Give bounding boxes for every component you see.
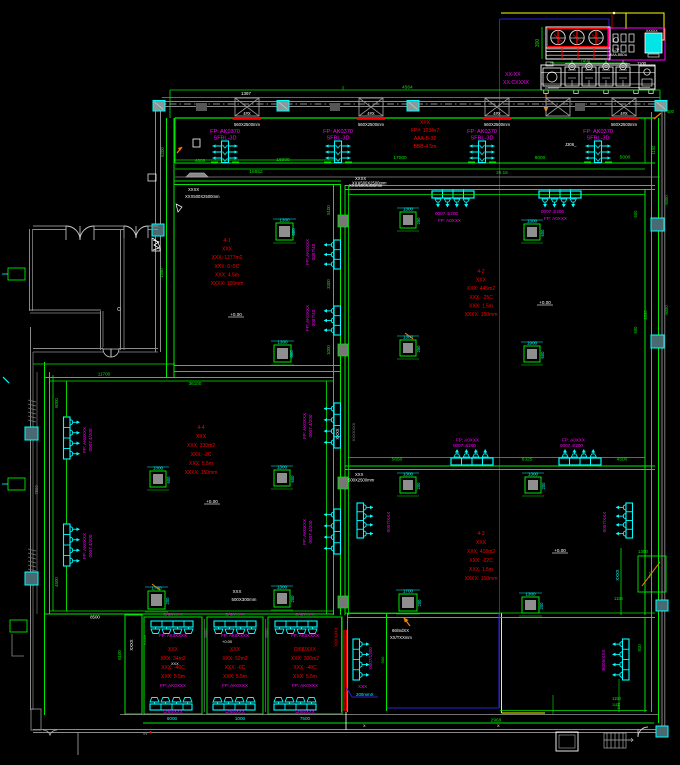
svg-text:XX:CXXXX: XX:CXXXX — [503, 80, 529, 86]
svg-text:FP#: 1234x7: FP#: 1234x7 — [411, 128, 440, 134]
svg-text:BBB-4.5m: BBB-4.5m — [414, 144, 437, 150]
svg-text:XXXX: 100mm: XXXX: 100mm — [211, 281, 244, 287]
svg-text:XXX: -25C: XXX: -25C — [469, 295, 493, 301]
svg-text:XXX: 4.5m: XXX: 4.5m — [215, 272, 239, 278]
svg-text:SFBL-3D: SFBL-3D — [586, 136, 609, 142]
svg-text:0007/40: 0007/40 — [311, 309, 316, 326]
svg-text:XXX: XXX — [476, 278, 487, 284]
svg-text:FP: A0XXX: FP: A0XXX — [438, 218, 461, 223]
svg-text:XXX: 418m2: XXX: 418m2 — [467, 549, 495, 555]
svg-text:4-3: 4-3 — [477, 531, 484, 537]
svg-text:X: X — [497, 723, 500, 728]
svg-text:XXXX: XXXX — [188, 187, 199, 192]
svg-text:D/68/XXX: D/68/XXX — [163, 612, 182, 617]
svg-text:0007.4/200: 0007.4/200 — [560, 443, 583, 448]
svg-text:250: 250 — [416, 345, 421, 353]
svg-text:XXX: 5.5m: XXX: 5.5m — [293, 674, 317, 680]
svg-text:1300: 1300 — [403, 472, 414, 477]
svg-text:XXXXXXX: XXXXXXX — [334, 627, 339, 647]
svg-text:B005/XXX: B005/XXX — [601, 649, 606, 670]
svg-text:4-4: 4-4 — [197, 425, 204, 431]
svg-text:SFBL-3D: SFBL-3D — [326, 136, 349, 142]
svg-text:1700: 1700 — [403, 589, 414, 594]
svg-text:600: 600 — [291, 228, 296, 236]
svg-text:6000: 6000 — [203, 628, 208, 638]
svg-text:600: 600 — [540, 229, 545, 237]
svg-text:4564: 4564 — [402, 85, 413, 91]
svg-text:4#X: 4#X — [620, 111, 628, 116]
svg-text:600: 600 — [633, 326, 638, 334]
svg-text:SFBL-3D: SFBL-3D — [213, 136, 236, 142]
svg-text:XXX: 1.5m: XXX: 1.5m — [469, 303, 493, 309]
svg-text:4-1: 4-1 — [223, 238, 230, 244]
svg-text:1397: 1397 — [241, 91, 252, 96]
svg-text:17000: 17000 — [393, 155, 407, 161]
svg-text:0007/1400: 0007/1400 — [368, 647, 373, 669]
svg-text:XXXX: XXXX — [615, 569, 620, 580]
svg-text:XXX: 330m2: XXX: 330m2 — [187, 443, 215, 449]
svg-text:560X2500mm: 560X2500mm — [484, 122, 511, 127]
svg-text:0007/XXX: 0007/XXX — [386, 512, 391, 533]
svg-text:X: X — [363, 723, 366, 728]
svg-text:1150: 1150 — [614, 596, 624, 601]
svg-text:D/68/XXX: D/68/XXX — [295, 709, 314, 714]
svg-text:XXX: -6C: XXX: -6C — [225, 665, 246, 671]
svg-text:XXX: 445m2: XXX: 445m2 — [467, 286, 495, 292]
svg-text:500X300mm: 500X300mm — [232, 597, 257, 602]
svg-text:XXX: XXX — [196, 434, 207, 440]
svg-text:XXX: XXX — [420, 120, 431, 126]
svg-text:+0.00: +0.00 — [554, 548, 566, 553]
svg-text:XXX: 5.5m: XXX: 5.5m — [161, 674, 185, 680]
svg-text:XXXX: XXXX — [335, 428, 340, 439]
svg-text:6100: 6100 — [117, 650, 122, 660]
svg-text:XXX500X2500mm: XXX500X2500mm — [185, 194, 220, 199]
svg-text:FP: AK0XXX: FP: AK0XXX — [302, 519, 307, 545]
svg-text:D/68/XXX: D/68/XXX — [294, 647, 317, 653]
svg-text:4600: 4600 — [195, 158, 206, 164]
svg-text:6000: 6000 — [167, 716, 178, 721]
svg-text:100: 100 — [667, 109, 675, 114]
svg-text:0007.4/200: 0007.4/200 — [541, 209, 564, 214]
svg-text:0007.4/200: 0007.4/200 — [88, 534, 93, 557]
svg-text:D/68/XXX: D/68/XXX — [225, 709, 244, 714]
svg-text:0007.4/200: 0007.4/200 — [435, 211, 458, 216]
svg-text:4500: 4500 — [617, 457, 628, 463]
svg-text:200: 200 — [165, 597, 170, 605]
svg-text:600: 600 — [540, 351, 545, 359]
svg-text:XXX: 300m2: XXX: 300m2 — [291, 656, 319, 662]
svg-text:560X2500mm: 560X2500mm — [611, 122, 638, 127]
svg-text:0007.4/200: 0007.4/200 — [453, 443, 476, 448]
svg-text:FP: AK0XXX: FP: AK0XXX — [160, 683, 186, 688]
svg-text:6000: 6000 — [54, 398, 59, 408]
svg-text:XXXX: 150mm: XXXX: 150mm — [465, 312, 498, 318]
svg-text:XXX: XXX — [355, 472, 364, 477]
svg-text:36100: 36100 — [189, 381, 202, 386]
svg-text:1350: 1350 — [159, 268, 164, 278]
svg-text:300: 300 — [535, 39, 541, 48]
svg-text:250: 250 — [648, 571, 653, 579]
svg-text:FP: AK0XXX: FP: AK0XXX — [82, 427, 87, 453]
svg-text:D/68/XXX: D/68/XXX — [163, 709, 182, 714]
svg-text:FP: AK0XXX: FP: AK0XXX — [302, 413, 307, 439]
svg-text:200: 200 — [290, 595, 295, 603]
svg-text:1300: 1300 — [527, 219, 538, 224]
svg-text:FP: A0XXX: FP: A0XXX — [562, 438, 585, 443]
svg-text:11700: 11700 — [98, 372, 111, 377]
svg-text:600: 600 — [290, 475, 295, 483]
svg-text:0007.4/200: 0007.4/200 — [308, 520, 313, 543]
svg-text:XXX: 0~5C: XXX: 0~5C — [215, 264, 240, 270]
svg-text:FP: AK0XXX: FP: AK0XXX — [292, 683, 318, 688]
svg-text:XXX: 52m2: XXX: 52m2 — [222, 656, 248, 662]
svg-text:vv: vv — [143, 731, 148, 736]
svg-text:6325: 6325 — [522, 457, 533, 463]
svg-text:+0.00: +0.00 — [222, 639, 233, 644]
svg-text:8500: 8500 — [90, 615, 100, 620]
svg-text:6200: 6200 — [160, 147, 165, 157]
svg-text:FP: AK0XXX: FP: AK0XXX — [82, 533, 87, 559]
svg-text:200mmX: 200mmX — [356, 692, 374, 697]
svg-text:600: 600 — [289, 350, 294, 358]
svg-text:6000: 6000 — [664, 305, 669, 315]
svg-text:1000: 1000 — [326, 345, 331, 355]
svg-text:500X2500mm: 500X2500mm — [348, 478, 375, 483]
svg-text:1150: 1150 — [651, 145, 656, 155]
svg-text:XXX: -40C: XXX: -40C — [293, 665, 317, 671]
svg-text:FP: A0XXX: FP: A0XXX — [456, 438, 479, 443]
svg-text:4500: 4500 — [54, 577, 59, 587]
svg-text:FP: AK0XXXX: FP: AK0XXXX — [221, 633, 249, 638]
svg-text:750: 750 — [580, 58, 588, 64]
svg-text:D/68/XXX: D/68/XXX — [225, 612, 244, 617]
svg-text:600: 600 — [633, 210, 638, 218]
svg-text:FP: AK0370: FP: AK0370 — [467, 129, 497, 135]
svg-text:1300: 1300 — [525, 592, 536, 597]
svg-text:J306_: J306_ — [565, 142, 577, 147]
svg-text:FP: AK0XXX: FP: AK0XXX — [305, 305, 310, 331]
svg-text:6000: 6000 — [664, 195, 669, 205]
svg-text:XXX/500X300mm: XXX/500X300mm — [349, 183, 383, 188]
svg-text:1350: 1350 — [638, 549, 648, 554]
svg-text:560X2500mm: 560X2500mm — [358, 122, 385, 127]
svg-text:1300: 1300 — [277, 585, 288, 590]
svg-text:XXX: -22C: XXX: -22C — [469, 558, 493, 564]
svg-text:16852: 16852 — [249, 169, 263, 175]
svg-text:XXX: 5.5m: XXX: 5.5m — [189, 461, 213, 467]
svg-text:FP: A0XXX: FP: A0XXX — [544, 216, 567, 221]
svg-text:900: 900 — [380, 656, 385, 663]
svg-text:0007/XXX: 0007/XXX — [602, 512, 607, 533]
svg-text:1300: 1300 — [277, 340, 288, 345]
svg-text:1900: 1900 — [527, 341, 538, 346]
svg-text:200: 200 — [416, 482, 421, 490]
svg-text:200: 200 — [539, 602, 544, 610]
svg-text:200: 200 — [417, 599, 422, 607]
svg-text:FP: AK0XXX: FP: AK0XXX — [305, 239, 310, 265]
svg-text:FP: AK0370: FP: AK0370 — [323, 129, 353, 135]
svg-text:XXXX: 150mm: XXXX: 150mm — [185, 470, 218, 476]
svg-text:XXX: XXX — [171, 662, 179, 666]
svg-text:5650: 5650 — [392, 457, 403, 463]
svg-text:0007.4/200: 0007.4/200 — [308, 414, 313, 437]
svg-text:XXX: XXX — [230, 647, 241, 653]
svg-text:XXX: -2C: XXX: -2C — [191, 452, 212, 458]
svg-text:0007/40: 0007/40 — [311, 243, 316, 260]
svg-text:XXXX: 150mm: XXXX: 150mm — [465, 576, 498, 582]
svg-text:XXX: XXX — [358, 684, 367, 689]
svg-text:16000: 16000 — [276, 157, 290, 163]
svg-text:29.16: 29.16 — [496, 170, 508, 175]
svg-text:XXX: XXX — [222, 247, 233, 253]
svg-text:XXXXXXX: XXXXXXX — [351, 422, 356, 441]
svg-text:FP: AK0XXXX: FP: AK0XXXX — [159, 633, 187, 638]
svg-text:AAA-BBDA: AAA-BBDA — [610, 53, 628, 57]
svg-text:910: 910 — [637, 644, 642, 652]
svg-text:XX/TXXmm: XX/TXXmm — [390, 635, 412, 640]
svg-text:1150: 1150 — [612, 696, 622, 701]
svg-text:4#X: 4#X — [367, 111, 375, 116]
svg-text:4#X: 4#X — [243, 111, 251, 116]
svg-text:XXX: 1.5m: XXX: 1.5m — [469, 567, 493, 573]
svg-text:200: 200 — [541, 482, 546, 490]
svg-text:XXXX: XXXX — [129, 639, 134, 650]
svg-text:1000: 1000 — [235, 716, 246, 721]
svg-text:1300: 1300 — [528, 472, 539, 477]
svg-text:XXX: 5.5m: XXX: 5.5m — [223, 674, 247, 680]
svg-text:250: 250 — [416, 217, 421, 225]
svg-text:+0.00: +0.00 — [539, 300, 551, 305]
svg-text:2550: 2550 — [643, 310, 648, 320]
svg-text:XXX: XXX — [476, 540, 487, 546]
svg-text:0007.4/200: 0007.4/200 — [88, 428, 93, 451]
svg-text:AAA-B-32: AAA-B-32 — [414, 136, 436, 142]
svg-text:1300: 1300 — [153, 466, 164, 471]
svg-text:6000: 6000 — [264, 628, 269, 638]
svg-text:3300: 3300 — [326, 279, 331, 289]
svg-text:1300: 1300 — [277, 465, 288, 470]
svg-text:XX-XX: XX-XX — [505, 72, 521, 78]
svg-text:1300: 1300 — [279, 218, 290, 223]
svg-text:7800: 7800 — [34, 485, 39, 495]
svg-text:4-7P: 4-7P — [612, 48, 620, 52]
svg-text:66lmdXX: 66lmdXX — [392, 628, 409, 633]
svg-text:SFBL-3D: SFBL-3D — [470, 136, 493, 142]
svg-text:XXXXX: XXXXX — [646, 29, 658, 33]
svg-text:XXX: XXX — [233, 589, 242, 594]
svg-text:FP: AK0XXX: FP: AK0XXX — [222, 683, 248, 688]
svg-text:XXX: XXX — [168, 647, 179, 653]
svg-text:5100: 5100 — [326, 205, 331, 215]
svg-text:7500: 7500 — [300, 716, 311, 721]
svg-text:FP: AK0370: FP: AK0370 — [210, 129, 240, 135]
svg-text:1111: 1111 — [612, 703, 620, 707]
svg-text:FP: AK0370: FP: AK0370 — [583, 129, 613, 135]
svg-text:FP: AK0XXXX: FP: AK0XXXX — [291, 633, 319, 638]
svg-text:D/68/XXX: D/68/XXX — [295, 612, 314, 617]
svg-text:9000: 9000 — [535, 155, 546, 161]
svg-text:600: 600 — [166, 476, 171, 484]
svg-text:+0.00: +0.00 — [206, 499, 218, 504]
svg-text:5000: 5000 — [620, 155, 631, 161]
svg-text:4-2: 4-2 — [477, 269, 484, 275]
svg-text:+0.00: +0.00 — [230, 312, 242, 317]
svg-text:XXX: 1277m2: XXX: 1277m2 — [212, 255, 243, 261]
svg-text:560X2500mm: 560X2500mm — [234, 122, 261, 127]
svg-text:1300: 1300 — [403, 207, 414, 212]
svg-text:4#X: 4#X — [493, 111, 501, 116]
